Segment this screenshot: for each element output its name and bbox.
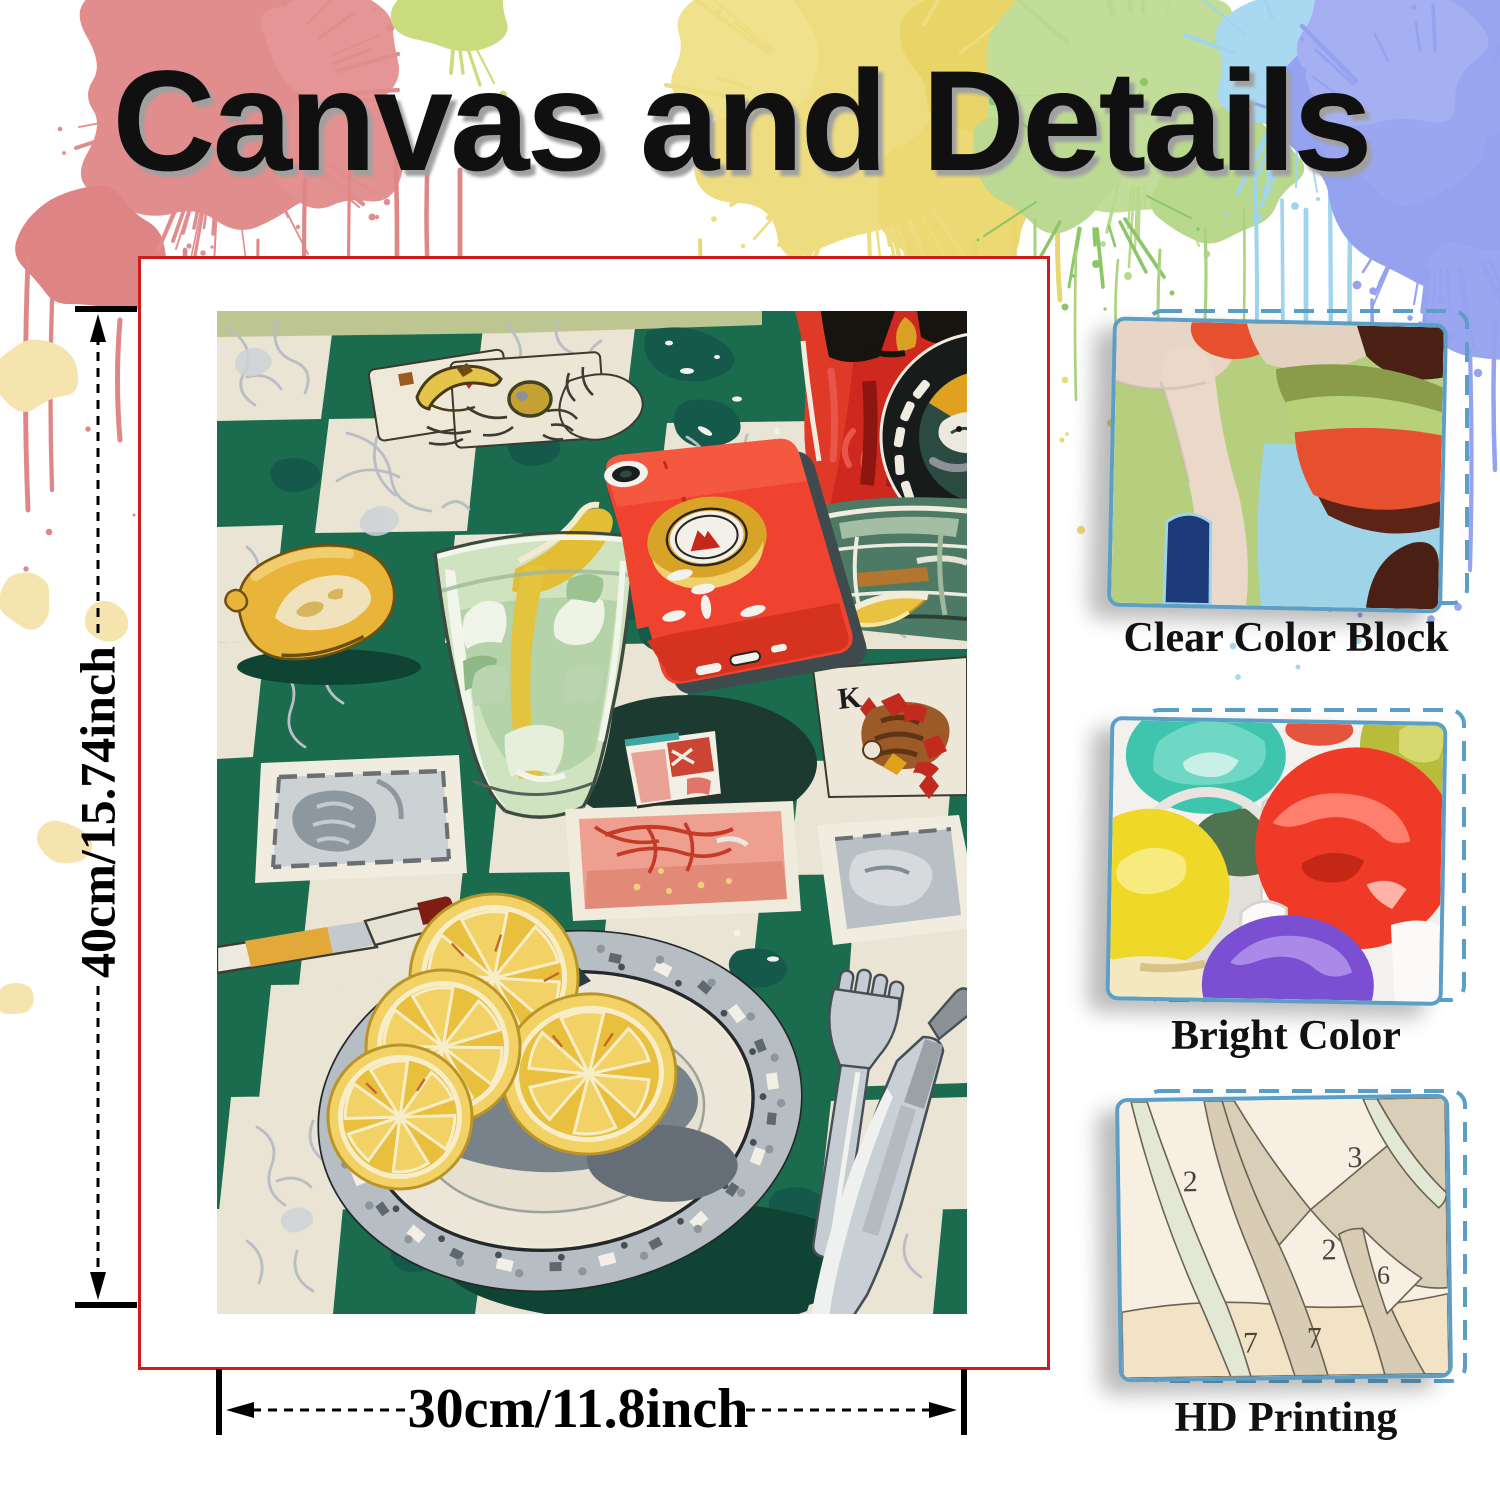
svg-text:2: 2	[1182, 1165, 1197, 1198]
svg-text:2: 2	[1321, 1233, 1336, 1266]
svg-text:6: 6	[1377, 1261, 1390, 1290]
svg-text:40cm/15.74inch: 40cm/15.74inch	[69, 646, 125, 978]
svg-text:7: 7	[1307, 1321, 1322, 1354]
svg-text:K: K	[836, 681, 863, 716]
svg-text:30cm/11.8inch: 30cm/11.8inch	[408, 1378, 749, 1440]
svg-text:3: 3	[1347, 1141, 1362, 1174]
svg-text:7: 7	[1243, 1326, 1258, 1359]
